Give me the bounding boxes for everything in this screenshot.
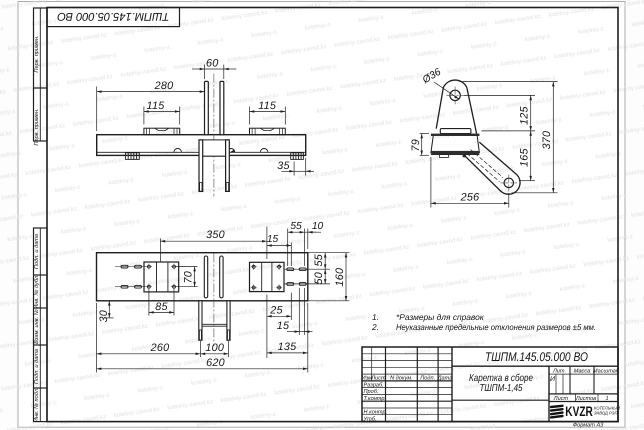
svg-text:Масса: Масса: [574, 368, 591, 374]
svg-text:70: 70: [183, 271, 195, 284]
svg-text:Инв. № подл.: Инв. № подл.: [33, 387, 40, 422]
svg-text:Подп. и дата: Подп. и дата: [33, 234, 40, 269]
svg-text:160: 160: [334, 268, 346, 287]
svg-text:Н.контр.: Н.контр.: [364, 410, 388, 416]
svg-text:115: 115: [258, 100, 277, 112]
svg-text:Инв. № дубл.: Инв. № дубл.: [33, 274, 40, 308]
svg-text:ТШПМ.145.05.000 ВО: ТШПМ.145.05.000 ВО: [57, 10, 169, 22]
svg-text:100: 100: [205, 342, 224, 354]
svg-text:135: 135: [278, 341, 298, 353]
svg-text:Формат А3: Формат А3: [573, 423, 604, 429]
svg-text:35: 35: [277, 160, 290, 172]
svg-text:Лист: Лист: [370, 375, 386, 381]
svg-text:KVZR: KVZR: [565, 404, 593, 419]
svg-text:1: 1: [605, 396, 608, 402]
svg-text:Подп.: Подп.: [420, 374, 435, 381]
svg-text:Лит.: Лит.: [552, 368, 566, 374]
svg-text:Взам. инв. №: Взам. инв. №: [34, 309, 40, 344]
svg-text:Проб.: Проб.: [364, 388, 379, 395]
svg-text:30: 30: [98, 310, 110, 323]
svg-text:Неуказанные предельные отклоне: Неуказанные предельные отклонения размер…: [396, 322, 596, 332]
svg-text:60: 60: [206, 58, 219, 70]
svg-text:Масштаб: Масштаб: [593, 367, 620, 374]
svg-text:15: 15: [267, 234, 279, 245]
svg-text:Дата: Дата: [437, 375, 453, 381]
svg-text:350: 350: [206, 229, 225, 241]
svg-text:Т.контр.: Т.контр.: [364, 396, 387, 402]
svg-text:260: 260: [150, 342, 170, 354]
svg-text:Перв. примен.: Перв. примен.: [34, 108, 40, 145]
svg-text:15: 15: [277, 320, 290, 332]
svg-text:256: 256: [460, 192, 480, 204]
svg-text:Перв. примен.: Перв. примен.: [34, 35, 40, 72]
svg-text:79: 79: [410, 139, 422, 152]
svg-text:2.: 2.: [371, 322, 379, 332]
svg-text:10: 10: [312, 221, 324, 232]
svg-text:Лист: Лист: [553, 396, 569, 402]
svg-text:Листов: Листов: [575, 396, 596, 402]
svg-text:КОТЕЛЬНЫЙ: КОТЕЛЬНЫЙ: [594, 405, 620, 410]
svg-text:280: 280: [154, 80, 174, 92]
svg-text:50: 50: [313, 272, 325, 285]
svg-text:125: 125: [519, 105, 531, 125]
svg-text:25: 25: [269, 305, 283, 317]
svg-text:85: 85: [155, 301, 168, 313]
svg-text:55: 55: [290, 221, 302, 232]
svg-text:*Размеры для справок: *Размеры для справок: [396, 312, 485, 322]
svg-text:370: 370: [541, 131, 553, 150]
svg-text:Подп. и дата: Подп. и дата: [33, 349, 40, 384]
svg-text:ТШПМ.145.05.000 ВО: ТШПМ.145.05.000 ВО: [485, 350, 588, 364]
svg-text:Разраб.: Разраб.: [364, 381, 384, 388]
svg-text:620: 620: [206, 357, 225, 369]
svg-text:N докум.: N докум.: [390, 374, 413, 381]
svg-text:115: 115: [147, 100, 166, 112]
svg-text:Утб.: Утб.: [363, 415, 377, 422]
svg-text:55: 55: [313, 253, 325, 266]
svg-text:165: 165: [519, 147, 531, 167]
svg-text:ТШПМ-1,45: ТШПМ-1,45: [480, 383, 523, 394]
svg-text:ЗАВОД РЭП: ЗАВОД РЭП: [594, 411, 618, 416]
svg-text:1.: 1.: [372, 312, 379, 322]
